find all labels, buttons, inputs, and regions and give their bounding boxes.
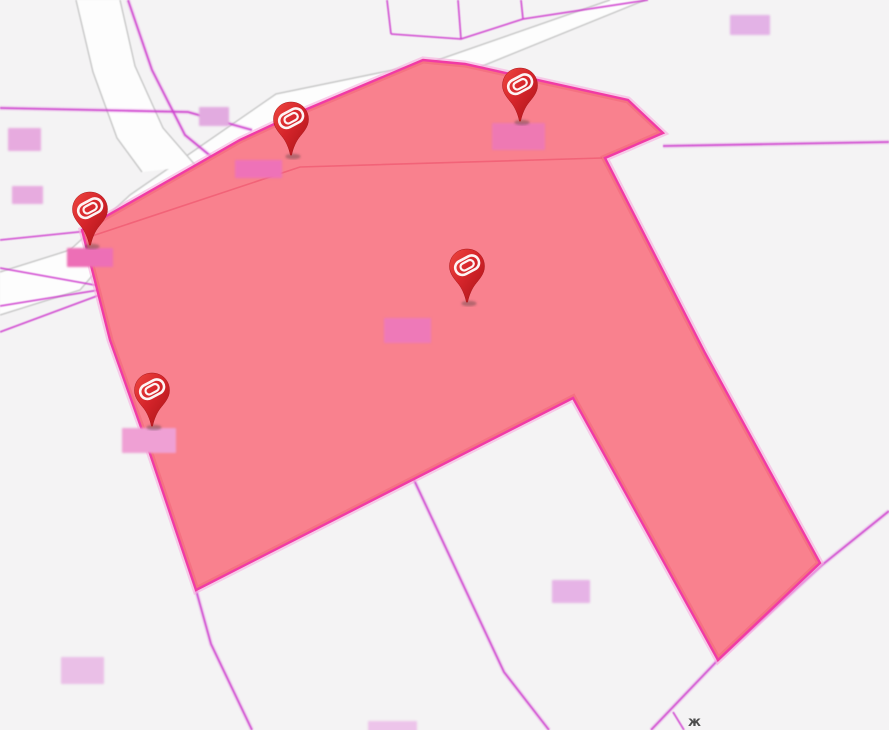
redacted-label	[730, 15, 770, 35]
map-canvas[interactable]: ж	[0, 0, 889, 730]
parcel-line	[414, 480, 549, 730]
redacted-label	[122, 428, 176, 453]
redacted-label	[384, 318, 431, 343]
pin-shadow	[462, 301, 477, 307]
redacted-label	[8, 128, 41, 151]
map-pin-marker[interactable]	[269, 98, 313, 160]
parcel-line	[387, 0, 391, 34]
parcel-line	[458, 0, 461, 39]
redacted-label	[552, 580, 590, 603]
redacted-label	[67, 248, 113, 267]
redacted-label	[12, 186, 43, 204]
redacted-label	[368, 721, 417, 730]
parcel-line	[673, 712, 684, 730]
map-pin-marker[interactable]	[68, 188, 112, 250]
map-pin-marker[interactable]	[130, 369, 174, 431]
pin-shadow	[85, 244, 100, 250]
highlighted-parcel[interactable]	[82, 60, 820, 660]
partial-map-text: ж	[688, 716, 701, 729]
redacted-label	[235, 160, 282, 178]
parcel-line	[521, 0, 523, 19]
map-pin-marker[interactable]	[445, 245, 489, 307]
pin-shadow	[286, 154, 301, 160]
pin-shadow	[515, 120, 530, 126]
pin-shadow	[147, 425, 162, 431]
redacted-label	[492, 123, 545, 150]
map-pin-marker[interactable]	[498, 64, 542, 126]
redacted-label	[61, 657, 104, 684]
redacted-label	[199, 107, 229, 126]
base-map-layer	[0, 0, 889, 730]
